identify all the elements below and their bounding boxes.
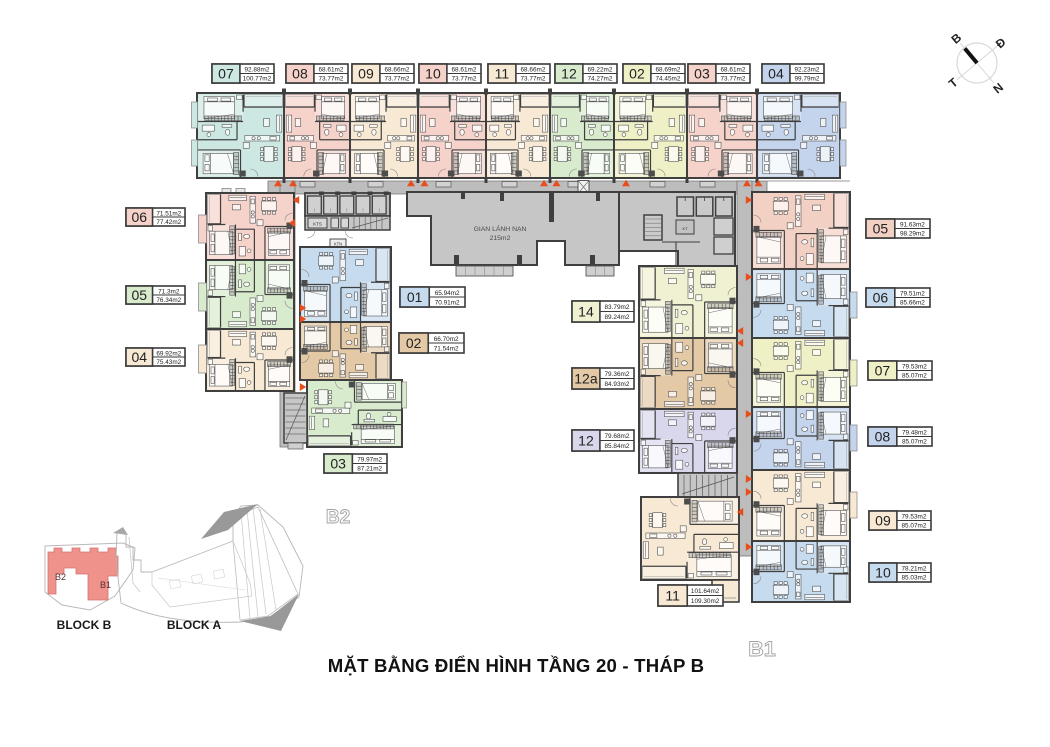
svg-text:109.30m2: 109.30m2 bbox=[691, 598, 720, 605]
svg-text:11: 11 bbox=[665, 588, 680, 604]
svg-text:BLOCK A: BLOCK A bbox=[167, 618, 222, 632]
svg-text:85.07m2: 85.07m2 bbox=[902, 523, 927, 530]
svg-text:73.77m2: 73.77m2 bbox=[721, 76, 746, 83]
svg-text:73.77m2: 73.77m2 bbox=[452, 76, 477, 83]
svg-text:92.88m2: 92.88m2 bbox=[245, 67, 270, 74]
svg-text:10: 10 bbox=[875, 565, 891, 581]
svg-text:12a: 12a bbox=[574, 371, 598, 387]
svg-text:76.34m2: 76.34m2 bbox=[156, 297, 181, 304]
svg-text:71.51m2: 71.51m2 bbox=[156, 210, 181, 217]
svg-text:BLOCK B: BLOCK B bbox=[57, 618, 112, 632]
svg-text:89.24m2: 89.24m2 bbox=[605, 314, 630, 321]
svg-text:71.54m2: 71.54m2 bbox=[434, 345, 459, 352]
svg-text:68.69m2: 68.69m2 bbox=[656, 67, 681, 74]
svg-text:05: 05 bbox=[873, 221, 889, 237]
svg-text:04: 04 bbox=[131, 349, 147, 365]
svg-text:02: 02 bbox=[629, 66, 645, 82]
svg-text:100.77m2: 100.77m2 bbox=[243, 76, 272, 83]
svg-text:03: 03 bbox=[330, 456, 346, 472]
svg-text:85.66m2: 85.66m2 bbox=[900, 300, 925, 307]
svg-text:68.61m2: 68.61m2 bbox=[452, 67, 477, 74]
svg-text:74.45m2: 74.45m2 bbox=[656, 76, 681, 83]
svg-text:14: 14 bbox=[578, 304, 594, 320]
svg-text:10: 10 bbox=[425, 66, 441, 82]
svg-text:215m2: 215m2 bbox=[490, 235, 511, 242]
svg-text:71.3m2: 71.3m2 bbox=[158, 288, 180, 295]
svg-text:07: 07 bbox=[875, 363, 891, 379]
svg-text:99.79m2: 99.79m2 bbox=[795, 76, 820, 83]
svg-text:69.92m2: 69.92m2 bbox=[156, 350, 181, 357]
svg-text:66.70m2: 66.70m2 bbox=[434, 336, 459, 343]
svg-text:91.63m2: 91.63m2 bbox=[900, 222, 925, 229]
svg-text:85.03m2: 85.03m2 bbox=[902, 575, 927, 582]
svg-text:06: 06 bbox=[131, 209, 147, 225]
svg-text:B2: B2 bbox=[55, 572, 66, 582]
svg-text:KT: KT bbox=[682, 226, 688, 231]
svg-text:09: 09 bbox=[875, 513, 891, 529]
svg-text:69.22m2: 69.22m2 bbox=[588, 67, 613, 74]
svg-text:09: 09 bbox=[358, 66, 374, 82]
svg-text:85.07m2: 85.07m2 bbox=[902, 373, 927, 380]
svg-text:KTS: KTS bbox=[313, 222, 322, 227]
svg-text:07: 07 bbox=[218, 66, 234, 82]
svg-text:04: 04 bbox=[768, 66, 784, 82]
svg-text:GIAN LÁNH NẠN: GIAN LÁNH NẠN bbox=[474, 224, 527, 233]
svg-text:01: 01 bbox=[407, 289, 423, 305]
svg-text:79.53m2: 79.53m2 bbox=[902, 364, 927, 371]
svg-text:68.66m2: 68.66m2 bbox=[521, 67, 546, 74]
svg-text:B1: B1 bbox=[100, 580, 111, 590]
svg-text:85.07m2: 85.07m2 bbox=[902, 439, 927, 446]
svg-text:79.97m2: 79.97m2 bbox=[357, 457, 382, 464]
svg-text:79.68m2: 79.68m2 bbox=[605, 433, 630, 440]
svg-text:79.53m2: 79.53m2 bbox=[902, 514, 927, 521]
svg-text:75.43m2: 75.43m2 bbox=[156, 359, 181, 366]
svg-text:68.61m2: 68.61m2 bbox=[721, 67, 746, 74]
svg-text:B1: B1 bbox=[748, 637, 776, 661]
svg-text:92.23m2: 92.23m2 bbox=[795, 67, 820, 74]
svg-text:70.91m2: 70.91m2 bbox=[435, 299, 460, 306]
svg-text:06: 06 bbox=[873, 290, 889, 306]
svg-text:12: 12 bbox=[578, 433, 594, 449]
svg-text:98.29m2: 98.29m2 bbox=[900, 231, 925, 238]
svg-text:73.77m2: 73.77m2 bbox=[521, 76, 546, 83]
svg-text:08: 08 bbox=[292, 66, 308, 82]
svg-text:77.42m2: 77.42m2 bbox=[156, 219, 181, 226]
svg-text:KTN: KTN bbox=[334, 242, 342, 247]
svg-text:02: 02 bbox=[406, 335, 422, 351]
svg-text:73.77m2: 73.77m2 bbox=[319, 76, 344, 83]
svg-text:08: 08 bbox=[875, 429, 891, 445]
svg-text:MẶT BẰNG ĐIỂN HÌNH TẦNG 20 - T: MẶT BẰNG ĐIỂN HÌNH TẦNG 20 - THÁP B bbox=[328, 655, 704, 676]
svg-text:74.27m2: 74.27m2 bbox=[588, 76, 613, 83]
svg-text:83.79m2: 83.79m2 bbox=[605, 304, 630, 311]
svg-text:73.77m2: 73.77m2 bbox=[385, 76, 410, 83]
svg-text:05: 05 bbox=[131, 287, 147, 303]
svg-text:B2: B2 bbox=[326, 507, 350, 528]
svg-text:79.36m2: 79.36m2 bbox=[605, 371, 630, 378]
svg-text:11: 11 bbox=[495, 66, 510, 82]
svg-text:79.51m2: 79.51m2 bbox=[900, 291, 925, 298]
svg-text:84.93m2: 84.93m2 bbox=[605, 381, 630, 388]
svg-text:68.61m2: 68.61m2 bbox=[319, 67, 344, 74]
svg-text:79.48m2: 79.48m2 bbox=[902, 430, 927, 437]
svg-text:87.21m2: 87.21m2 bbox=[357, 466, 382, 473]
svg-text:03: 03 bbox=[694, 66, 710, 82]
svg-text:78.21m2: 78.21m2 bbox=[902, 566, 927, 573]
svg-text:85.84m2: 85.84m2 bbox=[605, 443, 630, 450]
svg-text:68.66m2: 68.66m2 bbox=[385, 67, 410, 74]
svg-text:65.94m2: 65.94m2 bbox=[435, 290, 460, 297]
svg-text:101.64m2: 101.64m2 bbox=[691, 588, 720, 595]
svg-text:12: 12 bbox=[561, 66, 577, 82]
